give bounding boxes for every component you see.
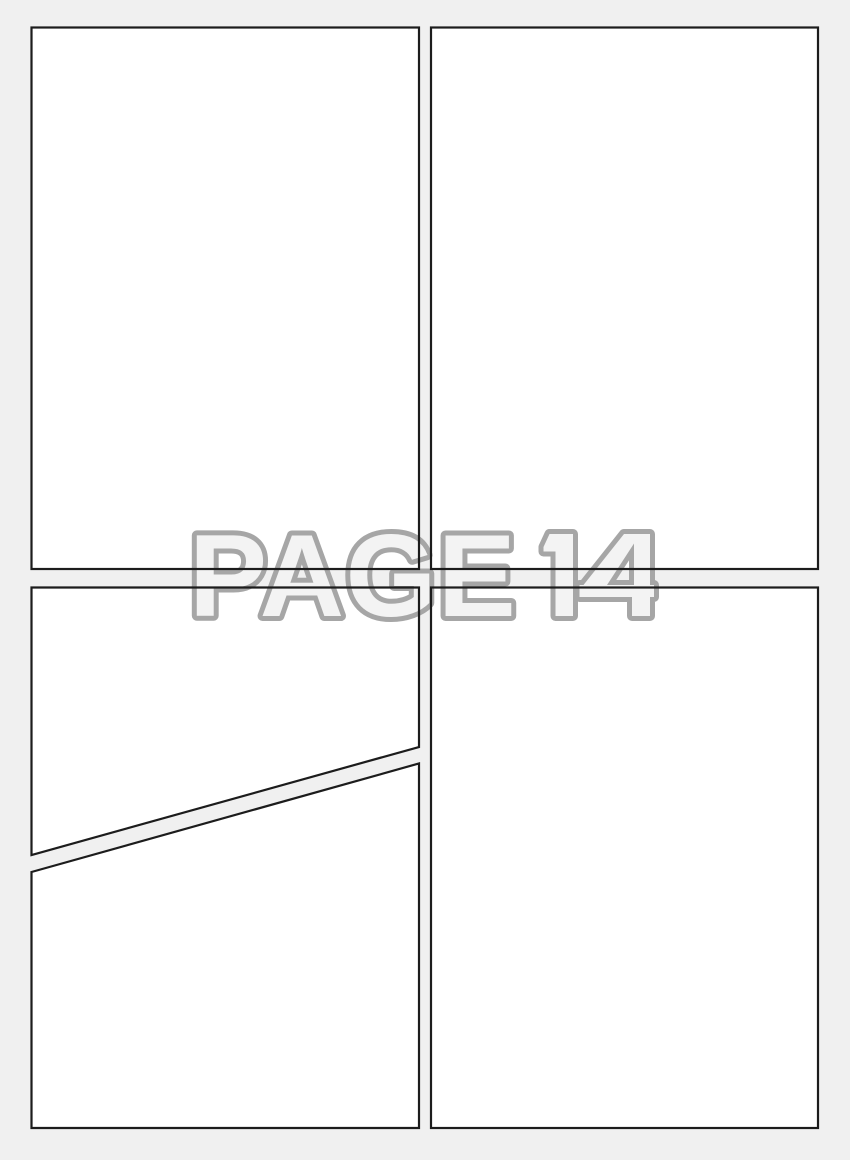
- svg-text:PAGE: PAGE: [189, 510, 517, 641]
